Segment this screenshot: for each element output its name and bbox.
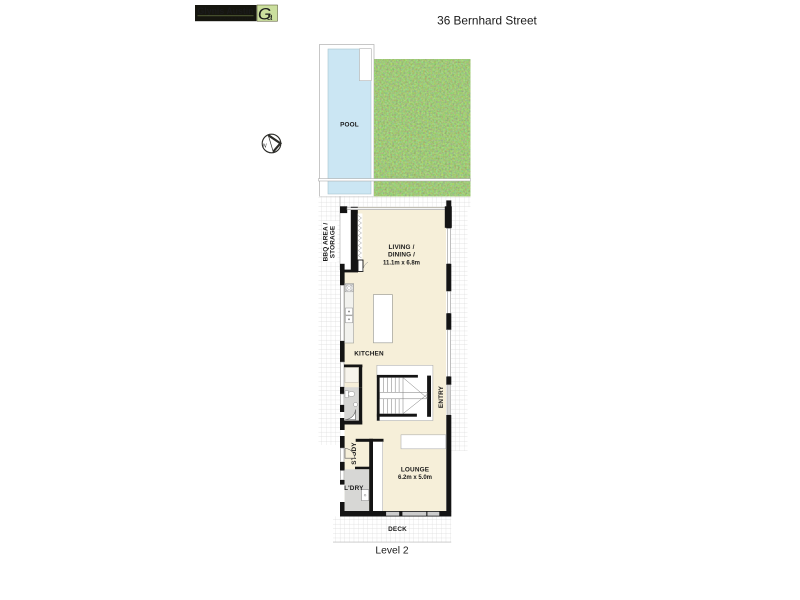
svg-text:ENTRY: ENTRY	[438, 385, 445, 408]
svg-text:36 Bernhard Street: 36 Bernhard Street	[437, 14, 537, 28]
svg-text:6.2m x 5.0m: 6.2m x 5.0m	[398, 475, 432, 481]
svg-text:LIVING /: LIVING /	[388, 244, 414, 251]
svg-text:POOL: POOL	[340, 122, 359, 129]
svg-text:BBQ AREA /: BBQ AREA /	[323, 223, 330, 262]
svg-text:STORAGE: STORAGE	[330, 225, 337, 258]
svg-text:KITCHEN: KITCHEN	[354, 351, 384, 358]
svg-text:a: a	[267, 12, 273, 23]
svg-text:DECK: DECK	[388, 526, 407, 533]
svg-text:L'DRY: L'DRY	[344, 485, 364, 492]
svg-text:11.1m x 6.8m: 11.1m x 6.8m	[383, 260, 420, 266]
svg-text:DINING /: DINING /	[388, 252, 415, 259]
svg-text:Level 2: Level 2	[375, 546, 408, 557]
svg-text:Glynis Austin: Glynis Austin	[198, 6, 254, 16]
svg-text:N: N	[263, 144, 267, 150]
svg-text:PROPERTIES: PROPERTIES	[220, 17, 254, 21]
svg-text:LOUNGE: LOUNGE	[401, 467, 430, 474]
